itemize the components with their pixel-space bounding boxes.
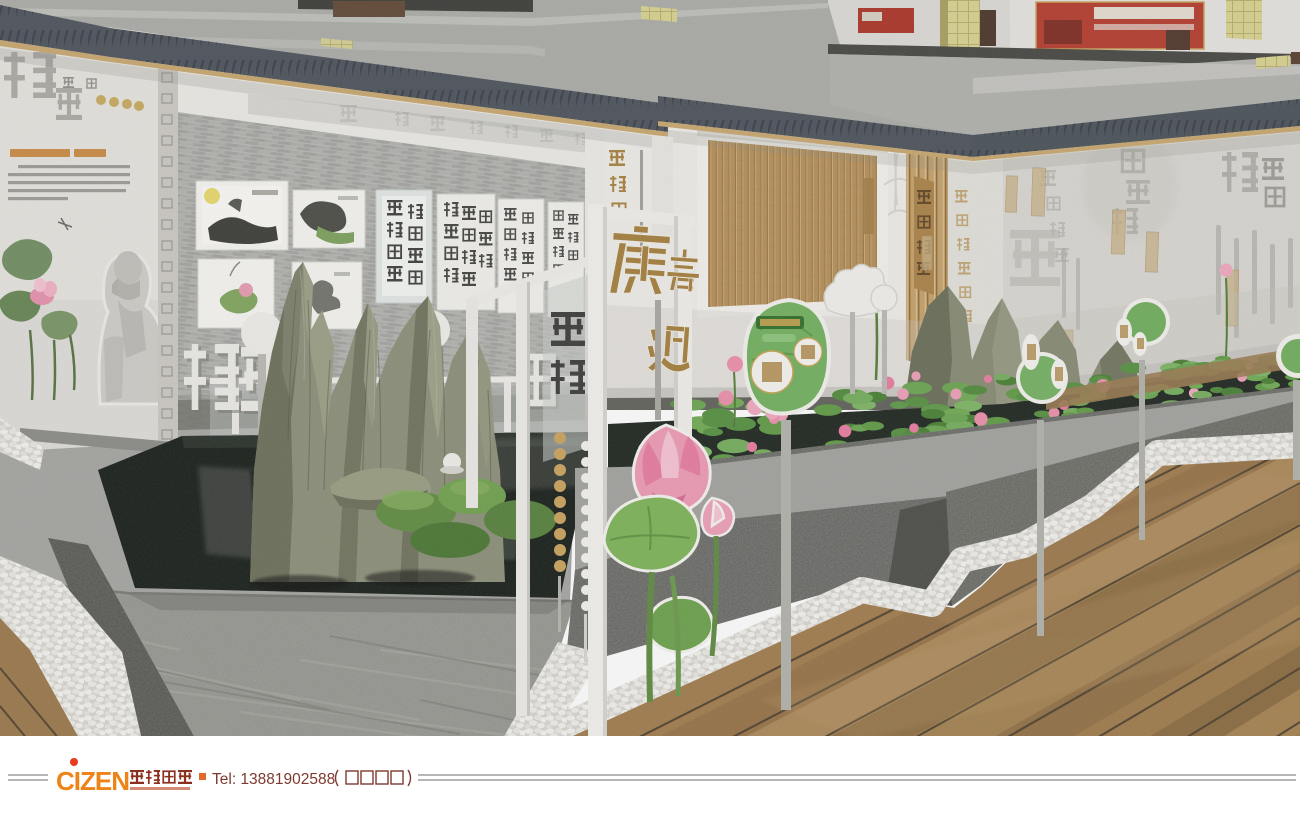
svg-text:Tel: 13881902588: Tel: 13881902588 [212, 771, 335, 788]
svg-text:CIZEN: CIZEN [56, 766, 129, 796]
